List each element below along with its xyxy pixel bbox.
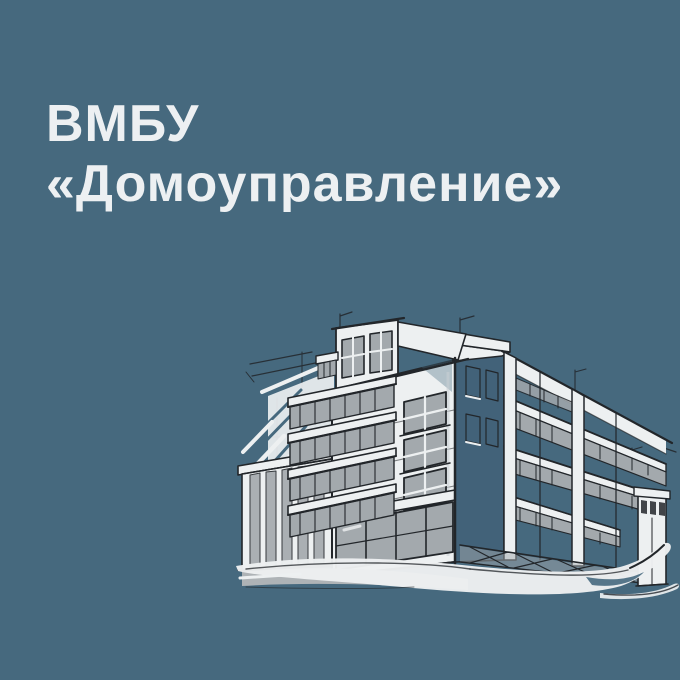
building-sketch-svg xyxy=(0,0,680,680)
building-sketch-illustration xyxy=(0,0,680,680)
wing-back-block xyxy=(452,332,510,562)
poster-card: ВМБУ «Домоуправление» xyxy=(0,0,680,680)
